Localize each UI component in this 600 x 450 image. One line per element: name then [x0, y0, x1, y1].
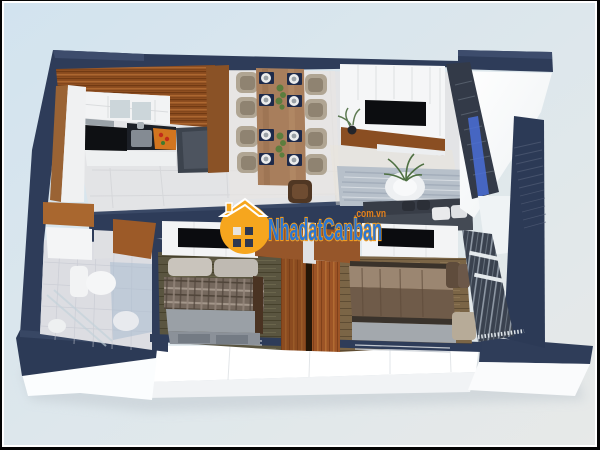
- svg-text:NhadatCanban: NhadatCanban: [268, 212, 382, 247]
